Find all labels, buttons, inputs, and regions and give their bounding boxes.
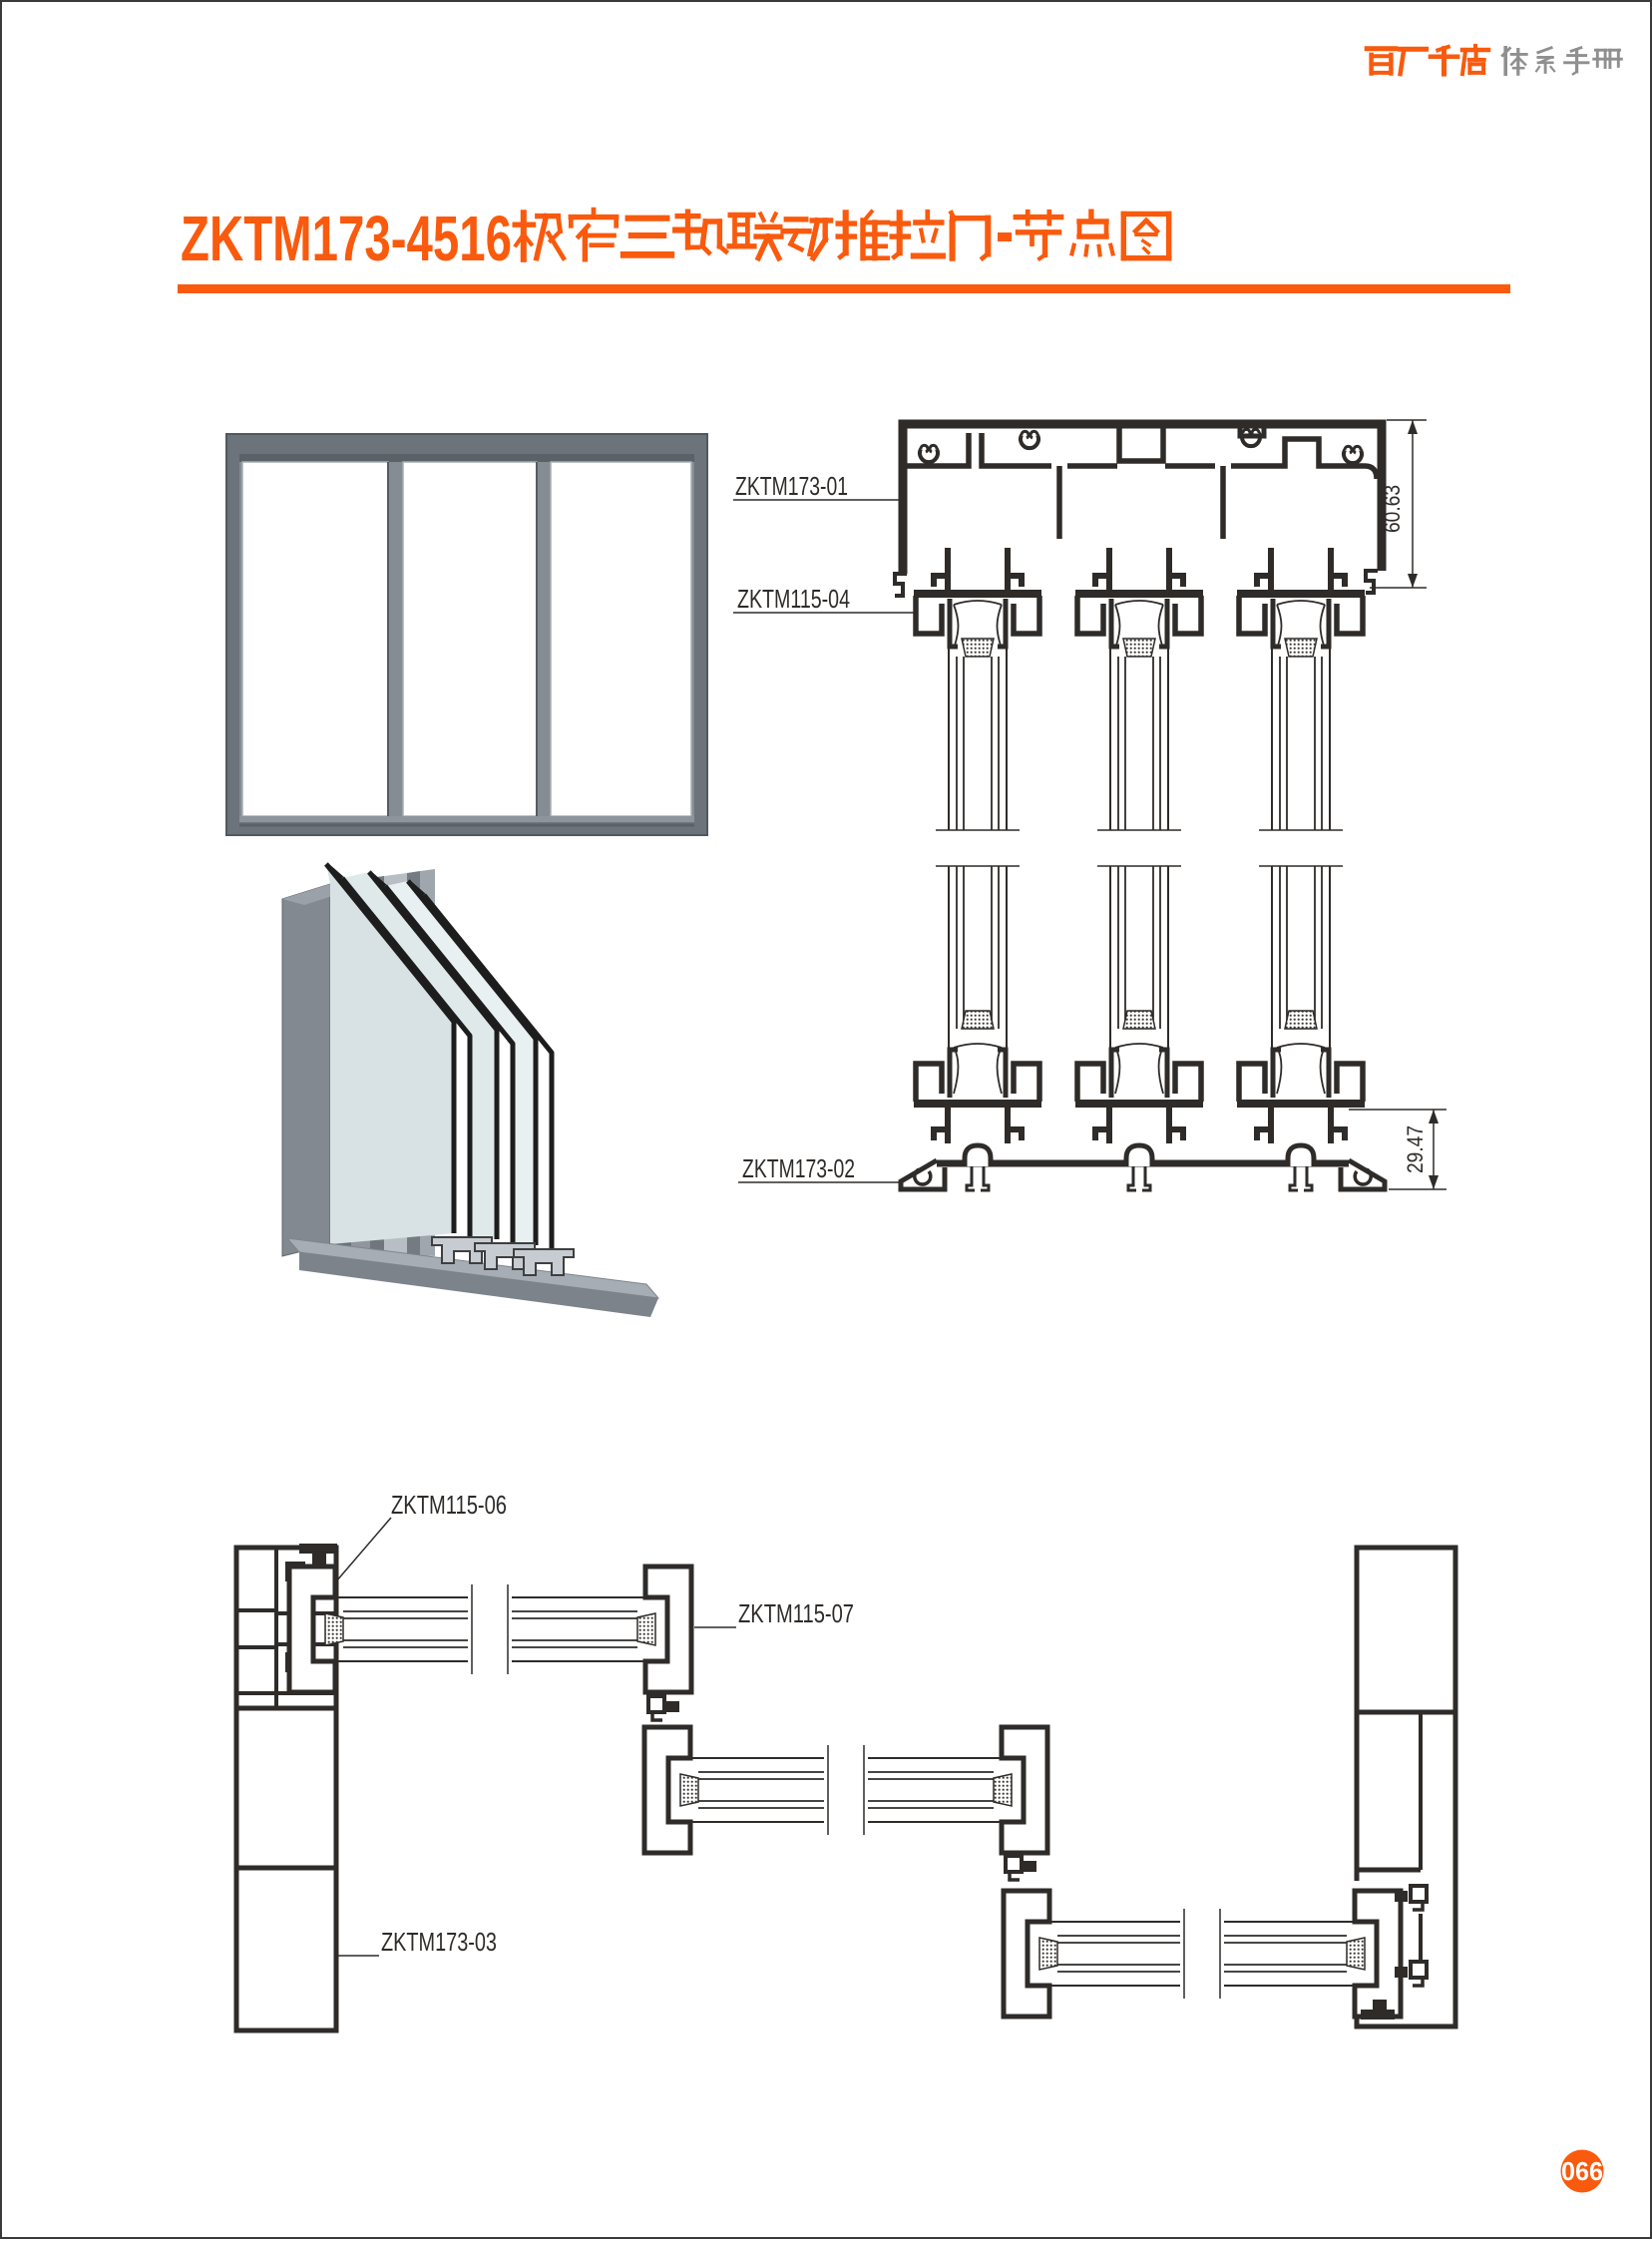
svg-text:29.47: 29.47 (1403, 1125, 1428, 1173)
svg-text:ZKTM115-06: ZKTM115-06 (391, 1490, 507, 1520)
svg-text:ZKTM115-04: ZKTM115-04 (737, 584, 850, 614)
svg-text:ZKTM173-02: ZKTM173-02 (742, 1153, 855, 1183)
svg-text:ZKTM173-4516: ZKTM173-4516 (181, 203, 512, 274)
svg-text:ZKTM173-03: ZKTM173-03 (381, 1927, 497, 1957)
svg-text:60.63: 60.63 (1380, 485, 1405, 533)
svg-text:ZKTM173-01: ZKTM173-01 (735, 471, 848, 501)
svg-text:ZKTM115-07: ZKTM115-07 (738, 1598, 854, 1628)
svg-text:066: 066 (1561, 2156, 1603, 2186)
